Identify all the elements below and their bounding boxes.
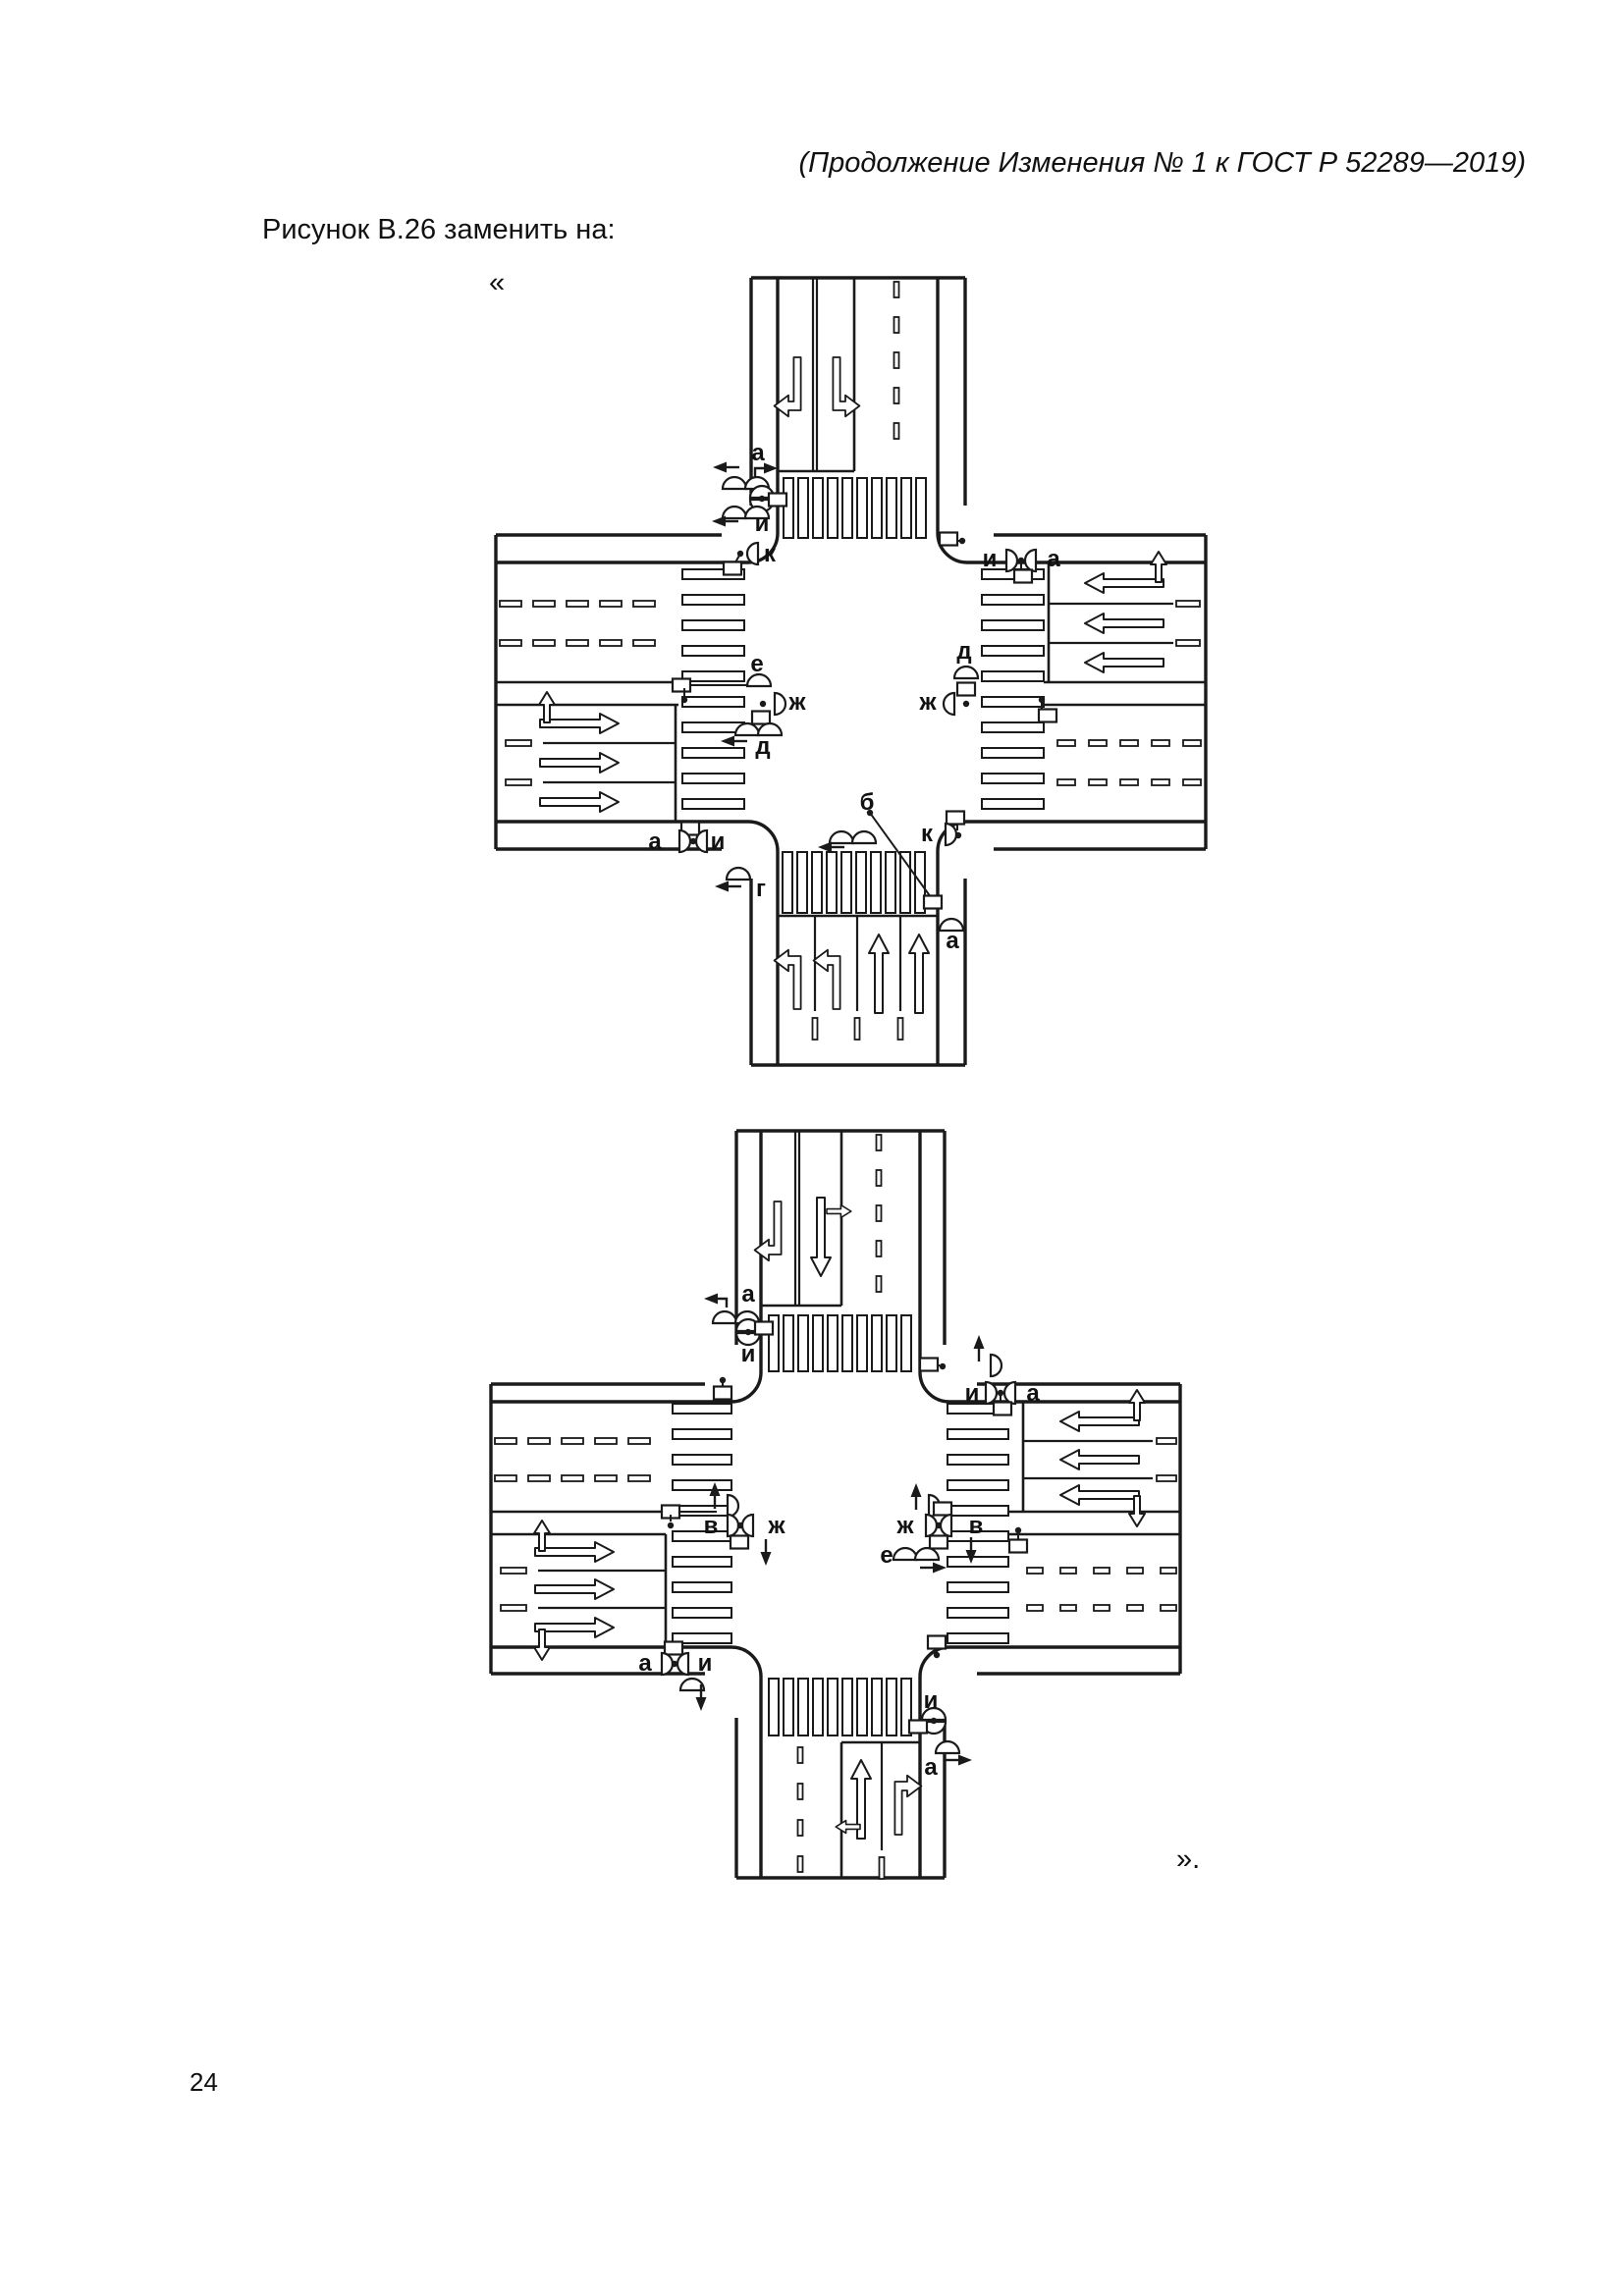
lane-arrow-left-turn-icon (814, 950, 840, 1009)
pedestrian-signal-icon (893, 1548, 917, 1560)
traffic-signal-icon (728, 1495, 738, 1517)
signal-pole-dot (955, 832, 961, 838)
signal-label: ж (918, 689, 937, 716)
signal-pole-dot (934, 1652, 940, 1658)
signal-label: а (638, 1650, 652, 1677)
lane-arrow-straight-icon (1085, 614, 1164, 633)
signal-cabinet-icon (673, 679, 690, 692)
direction-arrow-icon (911, 1483, 922, 1510)
crosswalk-north (769, 1315, 911, 1371)
signal-pole-northeast (920, 1359, 946, 1371)
signal-pole-dot (668, 1522, 674, 1528)
signal-label: а (924, 1754, 938, 1781)
signal-label: и (755, 510, 770, 537)
signal-label: в (969, 1513, 984, 1539)
signal-label: в (704, 1513, 719, 1539)
signal-cabinet-icon (928, 1636, 946, 1649)
direction-arrow-icon (715, 881, 741, 892)
lane-arrow-straight-icon (535, 1579, 614, 1599)
traffic-signal-icon (1025, 550, 1036, 571)
dashed-line-west-exit-2 (500, 640, 655, 646)
signal-label: а (741, 1281, 755, 1308)
signal-cabinet-icon (724, 562, 741, 575)
pedestrian-signal-icon (723, 477, 746, 489)
signal-pole-dot (745, 1329, 751, 1335)
lane-arrow-left-branch-icon (539, 692, 555, 722)
lane-arrow-straight-icon (1085, 573, 1164, 593)
dashed-line-east-exit-2 (1027, 1605, 1176, 1611)
signal-cabinet-icon (1039, 710, 1056, 722)
signal-label: а (648, 828, 662, 855)
traffic-signal-icon (926, 1515, 937, 1536)
figure-instruction: Рисунок В.26 заменить на: (262, 214, 616, 246)
road-outline (496, 278, 1206, 1065)
lane-arrow-turn-branch-icon (1151, 552, 1166, 582)
signal-pole-dot (959, 538, 965, 544)
crosswalk-south (769, 1679, 911, 1735)
signal-cabinet-icon (714, 1387, 731, 1400)
pedestrian-signal-icon (936, 1741, 959, 1753)
dashed-line-west-exit-2 (495, 1475, 650, 1481)
traffic-signal-icon (662, 1653, 673, 1675)
signal-label: а (1047, 546, 1060, 572)
signal-label: и (983, 546, 998, 572)
lane-arrow-straight-icon (540, 714, 619, 733)
traffic-signal-icon (944, 693, 954, 715)
signal-pole-dot (1018, 558, 1024, 563)
intersection-diagram-2: а и и а ж в е в ж а и и а (481, 1109, 1208, 1895)
lane-arrow-straight-icon (1060, 1450, 1139, 1469)
signal-label: ж (767, 1513, 785, 1539)
lane-arrow-straight-icon (1085, 653, 1164, 672)
lane-arrow-straight-icon (540, 792, 619, 812)
crosswalk-east (982, 569, 1044, 809)
signal-label: е (750, 651, 763, 677)
signal-cabinet-icon (920, 1359, 938, 1371)
signal-label: и (965, 1380, 980, 1407)
signal-pole-dot (963, 701, 969, 707)
direction-arrow-icon (721, 736, 747, 747)
dashed-line-north-exit (894, 282, 899, 439)
crosswalk-north (784, 478, 926, 538)
dashed-line-east-exit-1 (1057, 740, 1201, 746)
signal-cabinet-icon (1009, 1540, 1027, 1553)
signal-pole-dot (1015, 1527, 1021, 1533)
signal-pole-dot (1039, 697, 1045, 703)
dashed-line-north-exit (877, 1135, 882, 1292)
signal-label: ж (787, 689, 806, 716)
direction-arrow-icon (974, 1335, 985, 1362)
pedestrian-signal-icon (954, 667, 978, 678)
signal-pole-northeast (940, 533, 965, 546)
traffic-signal-icon (742, 1515, 753, 1536)
direction-arrow-icon (704, 1294, 727, 1308)
signal-label: е (880, 1542, 893, 1569)
lane-arrow-straight-icon (869, 934, 889, 1013)
signal-cabinet-icon (957, 683, 975, 696)
page-number: 24 (189, 2067, 218, 2098)
pedestrian-signal-icon (852, 831, 876, 843)
signal-pole-dot (760, 701, 766, 707)
lane-arrow-straight-icon (1060, 1412, 1139, 1431)
signal-label: д (755, 733, 770, 760)
traffic-signal-icon (991, 1355, 1001, 1376)
signal-cabinet-icon (909, 1721, 927, 1734)
signal-cabinet-icon (924, 896, 942, 909)
lane-arrow-straight-icon (535, 1542, 614, 1562)
traffic-signal-icon (677, 1653, 688, 1675)
signal-label: г (756, 876, 766, 902)
signal-label: и (711, 828, 726, 855)
signal-label: д (956, 638, 971, 665)
crosswalk-south (783, 852, 925, 913)
dashed-line-east-exit-1 (1027, 1568, 1176, 1574)
signal-pole-dot (681, 697, 687, 703)
lane-arrow-turn-branch-icon (827, 1205, 851, 1218)
signal-pole-dot (940, 1363, 946, 1369)
pedestrian-signal-icon (723, 507, 746, 518)
signal-label: а (946, 928, 959, 954)
pedestrian-signal-icon (915, 1548, 939, 1560)
signal-cabinet-icon (934, 1503, 951, 1516)
direction-arrow-icon (946, 1755, 972, 1766)
direction-arrow-icon (920, 1563, 947, 1574)
lane-arrow-right-turn-icon (894, 1776, 921, 1835)
lane-arrow-right-turn-icon (833, 357, 859, 416)
crosswalk-west (673, 1404, 731, 1643)
traffic-signal-icon (728, 1515, 738, 1536)
lane-arrow-straight-icon (540, 753, 619, 773)
lane-arrow-straight-icon (535, 1618, 614, 1637)
intersection-diagram-1: а и к и а д ж е ж д а и г б к а (486, 260, 1213, 1075)
signal-cabinet-icon (994, 1403, 1011, 1415)
signal-pole-northwest (714, 1377, 731, 1400)
crosswalk-west (682, 569, 744, 809)
signal-label: и (741, 1341, 756, 1367)
lane-arrow-right-branch-icon (534, 1629, 550, 1660)
signal-label: а (751, 440, 765, 466)
page-header: (Продолжение Изменения № 1 к ГОСТ Р 5228… (798, 147, 1526, 180)
traffic-signal-icon (946, 824, 956, 845)
lane-arrow-straight-icon (1060, 1485, 1139, 1505)
dashed-line-east-exit-2 (1057, 779, 1201, 785)
signal-pole-dot (998, 1390, 1003, 1396)
signal-pole-dot (720, 1377, 726, 1383)
signal-label: а (1026, 1380, 1040, 1407)
lane-arrow-turn-branch-icon (1129, 1390, 1145, 1420)
direction-arrow-icon (761, 1539, 772, 1566)
signal-cabinet-icon (755, 1322, 773, 1335)
signal-cabinet-icon (731, 1536, 748, 1549)
signal-cabinet-icon (947, 812, 964, 825)
pedestrian-signal-icon (727, 868, 750, 880)
signal-label: и (698, 1650, 713, 1677)
signal-cabinet-icon (769, 494, 786, 507)
signal-cabinet-icon (940, 533, 957, 546)
lane-arrow-left-branch-icon (534, 1521, 550, 1551)
signal-label: и (924, 1687, 939, 1714)
pedestrian-signal-icon (830, 831, 853, 843)
traffic-signal-icon (1006, 550, 1017, 571)
signal-cabinet-icon (752, 712, 770, 724)
signal-cabinet-icon (1014, 570, 1032, 583)
dashed-line-south-center (798, 1747, 803, 1872)
traffic-signal-icon (941, 1515, 951, 1536)
document-page: (Продолжение Изменения № 1 к ГОСТ Р 5228… (0, 0, 1624, 2296)
dashed-line-west-exit-1 (495, 1438, 650, 1444)
dashed-line-west-exit-1 (500, 601, 655, 607)
direction-arrow-icon (713, 462, 739, 473)
lane-arrow-straight-icon (909, 934, 929, 1013)
signal-label: б (860, 789, 875, 816)
signal-label: к (764, 541, 777, 567)
signal-cabinet-icon (930, 1536, 947, 1549)
traffic-signal-icon (775, 693, 785, 715)
signal-label: к (921, 821, 934, 847)
signal-label: ж (895, 1513, 914, 1539)
lane-arrows (534, 1198, 1145, 1839)
pedestrian-signal-icon (713, 1311, 736, 1323)
signal-cabinet-icon (665, 1642, 682, 1655)
lane-arrow-left-turn-icon (755, 1201, 782, 1260)
signal-pole-dot (759, 496, 765, 502)
signal-pole-dot (931, 1718, 937, 1724)
lane-line-stubs (501, 1438, 1176, 1879)
